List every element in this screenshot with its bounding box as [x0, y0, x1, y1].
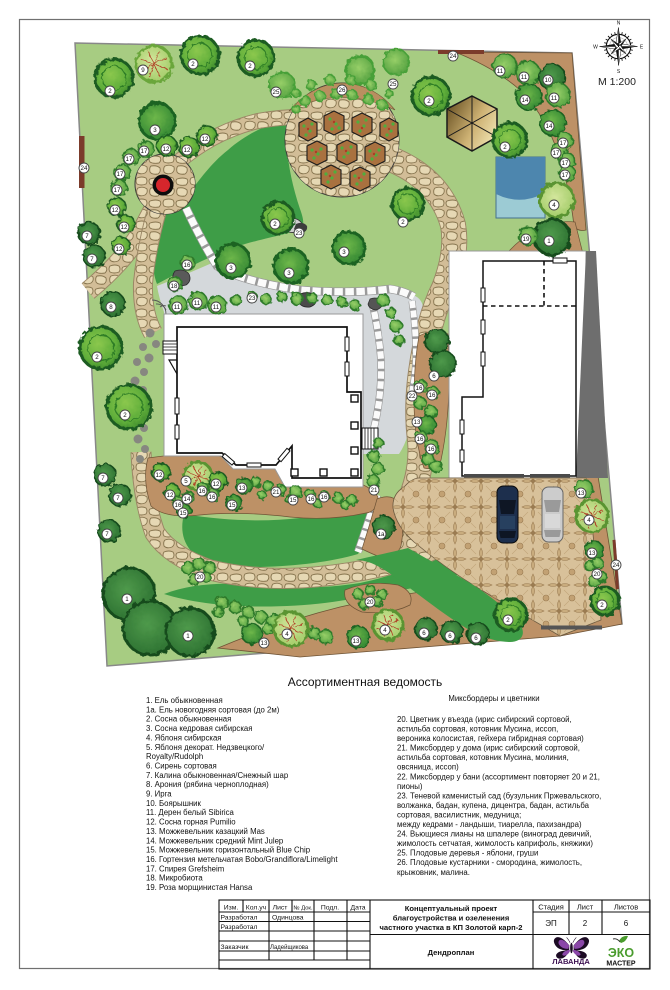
svg-text:14. Можжевельник средний Mint: 14. Можжевельник средний Mint Julep — [146, 836, 284, 845]
svg-text:14: 14 — [522, 97, 529, 104]
svg-text:4: 4 — [587, 517, 591, 524]
svg-text:N: N — [617, 21, 621, 27]
svg-text:19: 19 — [523, 236, 530, 243]
svg-text:16: 16 — [308, 496, 315, 503]
svg-text:7: 7 — [90, 256, 94, 263]
svg-text:16: 16 — [417, 436, 424, 443]
svg-text:2: 2 — [273, 221, 277, 228]
svg-text:20: 20 — [197, 574, 204, 581]
svg-text:благоустройства и озеленения: благоустройства и озеленения — [393, 914, 510, 923]
svg-text:22. Миксбордер у бани (ассорти: 22. Миксбордер у бани (ассортимент повто… — [397, 772, 600, 781]
svg-text:16: 16 — [184, 262, 191, 269]
svg-text:3: 3 — [287, 270, 291, 277]
svg-text:волжанка, бадан, купена, дицен: волжанка, бадан, купена, дицентра, бадан… — [397, 801, 590, 810]
svg-text:1. Ель обыкновенная: 1. Ель обыкновенная — [146, 696, 223, 705]
svg-text:13: 13 — [261, 640, 268, 647]
svg-text:частного участка в КП Золотой: частного участка в КП Золотой карп-2 — [380, 923, 523, 932]
svg-text:сортовая, василистник, медуниц: сортовая, василистник, медуница; — [397, 811, 521, 820]
svg-text:2: 2 — [95, 354, 99, 361]
svg-text:3: 3 — [342, 249, 346, 256]
svg-text:9: 9 — [141, 67, 145, 74]
svg-text:19. Роза морщинистая Hansa: 19. Роза морщинистая Hansa — [146, 883, 253, 892]
svg-text:Заказчик: Заказчик — [221, 944, 249, 951]
svg-text:13: 13 — [353, 638, 360, 645]
svg-text:15: 15 — [290, 497, 297, 504]
svg-text:16: 16 — [209, 494, 216, 501]
svg-text:2: 2 — [600, 602, 604, 609]
svg-text:4: 4 — [285, 631, 289, 638]
svg-text:11. Дерен белый Sibirica: 11. Дерен белый Sibirica — [146, 808, 235, 817]
svg-text:12: 12 — [112, 207, 119, 214]
svg-text:Миксбордеры и цветники: Миксбордеры и цветники — [448, 694, 539, 703]
svg-text:3: 3 — [153, 127, 157, 134]
svg-text:2: 2 — [191, 61, 195, 68]
svg-text:Royalty/Rudolph: Royalty/Rudolph — [146, 752, 203, 761]
svg-text:14: 14 — [546, 123, 553, 130]
svg-text:Изм.: Изм. — [224, 905, 239, 912]
svg-text:Листов: Листов — [614, 903, 638, 912]
svg-text:13: 13 — [239, 485, 246, 492]
svg-text:2: 2 — [248, 63, 252, 70]
svg-text:12: 12 — [156, 472, 163, 479]
svg-text:23. Теневой каменистый сад (бу: 23. Теневой каменистый сад (бузульник Пр… — [397, 791, 601, 800]
svg-text:10: 10 — [545, 77, 552, 84]
svg-text:16: 16 — [199, 488, 206, 495]
svg-text:4: 4 — [552, 202, 556, 209]
svg-text:5. Яблоня декорат. Недзвецкого: 5. Яблоня декорат. Недзвецкого/ — [146, 743, 265, 752]
svg-text:Кол.уч: Кол.уч — [246, 905, 267, 912]
svg-text:Ассортиментная ведомость: Ассортиментная ведомость — [288, 675, 443, 689]
svg-text:24: 24 — [450, 53, 457, 60]
svg-text:7: 7 — [116, 495, 120, 502]
svg-text:13: 13 — [589, 550, 596, 557]
svg-text:7. Калина обыкновенная/Снежный: 7. Калина обыкновенная/Снежный шар — [146, 771, 289, 780]
svg-text:Дата: Дата — [350, 905, 365, 912]
svg-text:12: 12 — [163, 146, 170, 153]
svg-text:26: 26 — [339, 87, 346, 94]
svg-text:16: 16 — [428, 446, 435, 453]
svg-text:2: 2 — [506, 617, 510, 624]
svg-text:11: 11 — [174, 304, 181, 311]
svg-text:16: 16 — [416, 385, 423, 392]
svg-text:20. Цветник у въезда (ирис сиб: 20. Цветник у въезда (ирис сибирский сор… — [397, 715, 572, 724]
svg-text:Стадия: Стадия — [538, 903, 564, 912]
svg-text:Дендроплан: Дендроплан — [428, 948, 475, 957]
svg-text:вероника колосистая, гейхера г: вероника колосистая, гейхера гибридная с… — [397, 734, 584, 743]
svg-text:Подл.: Подл. — [321, 905, 339, 912]
svg-text:17. Спирея Grefsheim: 17. Спирея Grefsheim — [146, 864, 224, 873]
svg-text:17: 17 — [562, 172, 569, 179]
svg-text:16: 16 — [429, 392, 436, 399]
svg-text:между кедрами - ландыши, тиаре: между кедрами - ландыши, тиарелла, пахиз… — [397, 820, 582, 829]
svg-text:МАСТЕР: МАСТЕР — [606, 961, 636, 968]
svg-text:8. Арония (рябина черноплодная: 8. Арония (рябина черноплодная) — [146, 780, 269, 789]
svg-text:7: 7 — [105, 531, 109, 538]
svg-text:25: 25 — [390, 81, 397, 88]
svg-text:Разработал: Разработал — [221, 914, 258, 922]
svg-text:астильба сортовая, котовник Му: астильба сортовая, котовник Мусина, моли… — [397, 753, 569, 762]
svg-text:15: 15 — [180, 510, 187, 517]
svg-text:W: W — [593, 45, 598, 51]
svg-text:11: 11 — [521, 74, 528, 81]
svg-text:Одинцова: Одинцова — [272, 915, 304, 922]
svg-text:1: 1 — [547, 238, 551, 245]
svg-text:17: 17 — [114, 187, 121, 194]
svg-text:2: 2 — [123, 412, 127, 419]
svg-text:11: 11 — [194, 300, 201, 307]
svg-text:6: 6 — [474, 635, 478, 642]
svg-text:17: 17 — [126, 156, 133, 163]
svg-text:24: 24 — [81, 165, 88, 172]
svg-text:16: 16 — [321, 494, 328, 501]
svg-text:14: 14 — [184, 496, 191, 503]
svg-text:6: 6 — [422, 630, 426, 637]
svg-text:22: 22 — [409, 393, 416, 400]
svg-text:3. Сосна кедровая сибирская: 3. Сосна кедровая сибирская — [146, 724, 252, 733]
svg-text:2. Сосна обыкновенная: 2. Сосна обыкновенная — [146, 715, 231, 724]
svg-text:2: 2 — [108, 88, 112, 95]
svg-text:17: 17 — [562, 160, 569, 167]
svg-text:12: 12 — [184, 147, 191, 154]
svg-text:13: 13 — [414, 419, 421, 426]
svg-text:12: 12 — [202, 136, 209, 143]
svg-text:6. Сирень сортовая: 6. Сирень сортовая — [146, 762, 217, 771]
svg-text:пионы): пионы) — [397, 782, 423, 791]
svg-text:овсяница, иссоп): овсяница, иссоп) — [397, 763, 459, 772]
svg-text:18: 18 — [171, 283, 178, 290]
svg-text:8: 8 — [109, 304, 113, 311]
svg-text:13. Можжевельник казацкий Mas: 13. Можжевельник казацкий Mas — [146, 827, 265, 836]
svg-text:Лист: Лист — [273, 905, 288, 912]
svg-text:24: 24 — [613, 562, 620, 569]
svg-text:ЭКО: ЭКО — [608, 946, 635, 960]
svg-text:ЛАВАНДА: ЛАВАНДА — [552, 957, 590, 966]
svg-text:25. Плодовые деревья - яблони,: 25. Плодовые деревья - яблони, груши — [397, 849, 538, 858]
svg-text:21: 21 — [273, 489, 280, 496]
svg-text:17: 17 — [141, 148, 148, 155]
svg-text:21: 21 — [371, 487, 378, 494]
svg-text:ЭП: ЭП — [545, 919, 557, 928]
svg-text:2: 2 — [427, 98, 431, 105]
svg-text:10. Боярышник: 10. Боярышник — [146, 799, 202, 808]
svg-text:2: 2 — [583, 919, 588, 928]
svg-text:№ Док.: № Док. — [293, 906, 313, 912]
svg-text:12: 12 — [213, 481, 220, 488]
svg-text:1а. Ель новогодняя сортовая (д: 1а. Ель новогодняя сортовая (до 2м) — [146, 705, 280, 714]
svg-text:4: 4 — [383, 627, 387, 634]
svg-text:3: 3 — [229, 265, 233, 272]
svg-text:2: 2 — [401, 219, 405, 226]
svg-text:2: 2 — [503, 144, 507, 151]
svg-text:11: 11 — [551, 95, 558, 102]
svg-text:17: 17 — [117, 171, 124, 178]
svg-text:Ладейщикова: Ладейщикова — [270, 944, 309, 951]
svg-text:12: 12 — [121, 224, 128, 231]
svg-text:26. Плодовые кустарники - смор: 26. Плодовые кустарники - смородина, жим… — [397, 858, 582, 867]
svg-text:12: 12 — [167, 492, 174, 499]
svg-text:5: 5 — [184, 478, 188, 485]
svg-text:6: 6 — [624, 919, 629, 928]
svg-text:М 1:200: М 1:200 — [598, 76, 636, 88]
svg-text:24. Вьющиеся лианы на шпалере: 24. Вьющиеся лианы на шпалере (виноград … — [397, 830, 591, 839]
svg-text:18. Микробиота: 18. Микробиота — [146, 874, 203, 883]
svg-text:12. Сосна горная Pumilio: 12. Сосна горная Pumilio — [146, 818, 236, 827]
svg-text:1: 1 — [186, 633, 190, 640]
svg-text:15. Можжевельник горизонтальны: 15. Можжевельник горизонтальный Blue Chi… — [146, 846, 311, 855]
svg-text:1: 1 — [125, 596, 129, 603]
svg-text:20: 20 — [367, 599, 374, 606]
svg-text:Лист: Лист — [577, 903, 594, 912]
svg-text:Разработал: Разработал — [221, 923, 258, 931]
svg-text:астильба сортовая, котовник Му: астильба сортовая, котовник Мусина, иссо… — [397, 725, 558, 734]
svg-text:21. Миксбордер у дома (ирис си: 21. Миксбордер у дома (ирис сибирский со… — [397, 744, 580, 753]
svg-text:17: 17 — [553, 150, 560, 157]
svg-text:7: 7 — [85, 233, 89, 240]
svg-text:4. Яблоня сибирская: 4. Яблоня сибирская — [146, 733, 222, 742]
svg-text:23: 23 — [249, 295, 256, 302]
svg-text:6: 6 — [448, 633, 452, 640]
svg-text:11: 11 — [497, 68, 504, 75]
svg-text:25: 25 — [273, 89, 280, 96]
svg-text:крыжовник, малина.: крыжовник, малина. — [397, 868, 470, 877]
svg-text:жимолость сетчатая, жимолость: жимолость сетчатая, жимолость каприфоль,… — [397, 839, 593, 848]
svg-text:7: 7 — [101, 475, 105, 482]
svg-text:1а: 1а — [378, 531, 385, 538]
svg-text:15: 15 — [229, 502, 236, 509]
svg-text:6: 6 — [432, 373, 436, 380]
svg-text:20: 20 — [594, 571, 601, 578]
svg-text:9. Ирга: 9. Ирга — [146, 790, 172, 799]
svg-text:Концептуальный проект: Концептуальный проект — [405, 904, 498, 913]
svg-text:17: 17 — [560, 140, 567, 147]
svg-text:16. Гортензия метельчатая Bobo: 16. Гортензия метельчатая Bobo/Grandiflo… — [146, 855, 338, 864]
svg-text:13: 13 — [578, 490, 585, 497]
svg-text:11: 11 — [213, 304, 220, 311]
svg-text:23: 23 — [296, 230, 303, 237]
svg-text:12: 12 — [116, 246, 123, 253]
